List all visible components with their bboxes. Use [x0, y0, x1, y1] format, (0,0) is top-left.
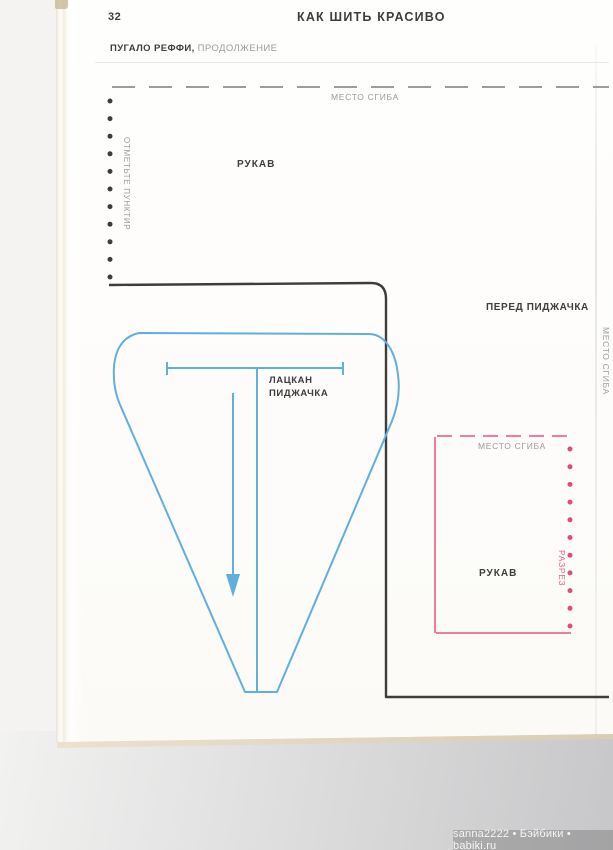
mark-dotted-label: ОТМЕТЬТЕ ПУНКТИР — [122, 137, 131, 230]
fold-label-sleeve-box: МЕСТО СГИБА — [478, 441, 546, 451]
lapel-label-line2: ПИДЖАЧКА — [269, 388, 328, 399]
grain-arrow-head — [226, 574, 240, 597]
jacket-front-label: ПЕРЕД ПИДЖАЧКА — [486, 302, 589, 313]
watermark: sanna2222 • Бэйбики • babiki.ru — [453, 830, 613, 850]
scanned-magazine-page: 32 КАК ШИТЬ КРАСИВО ПУГАЛО РЕФФИ, ПРОДОЛ… — [0, 0, 613, 850]
sleeve-label-top: РУКАВ — [237, 159, 275, 170]
fold-label-top: МЕСТО СГИБА — [331, 92, 399, 102]
lapel-label-line1: ЛАЦКАН — [269, 375, 313, 386]
pattern-drawing — [0, 0, 613, 850]
fold-label-right: МЕСТО СГИБА — [601, 327, 611, 395]
cut-label: РАЗРЕЗ — [557, 550, 567, 586]
sleeve-label-bottom: РУКАВ — [479, 568, 517, 579]
lapel-label: ЛАЦКАН ПИДЖАЧКА — [269, 374, 349, 400]
jacket-front-outline — [109, 283, 609, 697]
